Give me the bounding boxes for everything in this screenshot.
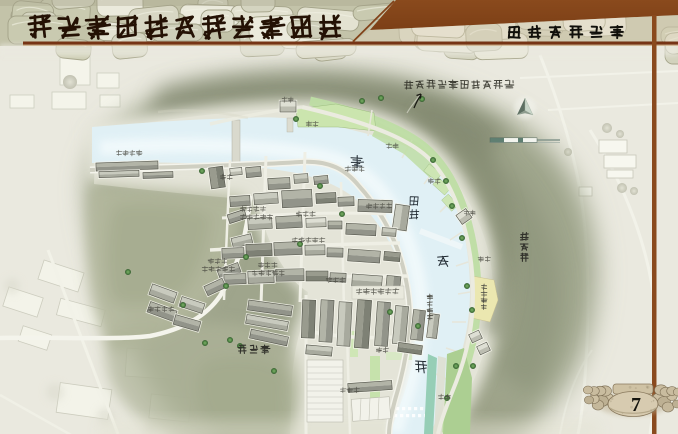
svg-text:7: 7	[631, 394, 641, 416]
